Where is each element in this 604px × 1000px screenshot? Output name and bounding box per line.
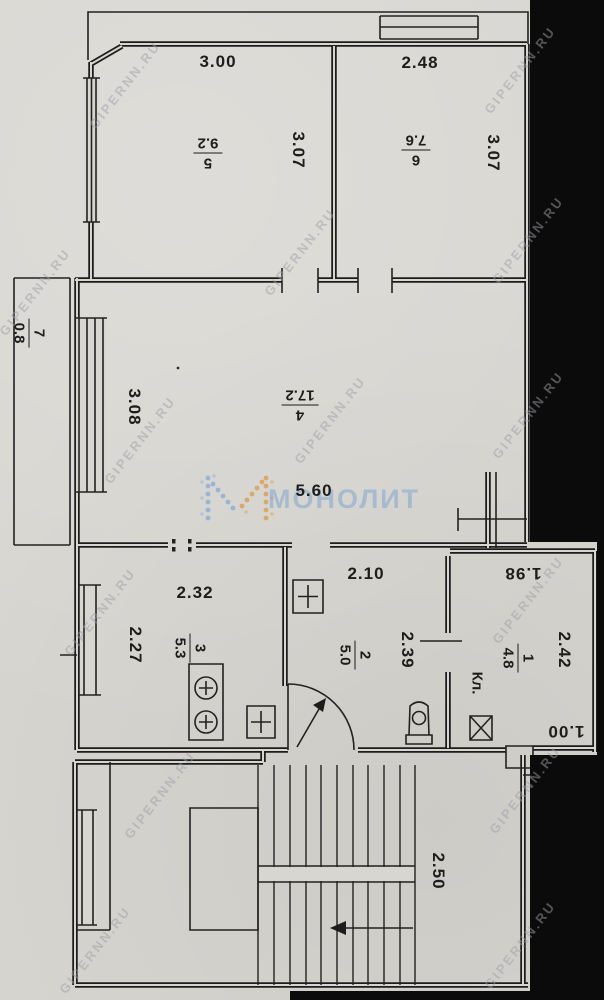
dim-room3-width: 2.32 bbox=[176, 583, 213, 603]
room-label-6: 6 7.6 bbox=[402, 133, 431, 168]
room-label-2-hall: 2 5.0 bbox=[338, 641, 373, 670]
dim-room3-depth: 2.27 bbox=[125, 626, 145, 663]
room-number: 1 bbox=[519, 650, 536, 666]
room-number: 4 bbox=[292, 406, 308, 423]
dim-room5-depth: 3.07 bbox=[288, 131, 308, 168]
vent-box-kitchen-icon bbox=[247, 706, 275, 738]
window-room5-left bbox=[83, 78, 100, 222]
room-number: 2 bbox=[356, 647, 373, 663]
dim-room1-depth: 2.42 bbox=[554, 631, 574, 668]
stove-icon bbox=[189, 664, 223, 740]
monolit-logo-icon bbox=[200, 474, 274, 520]
room-area: 17.2 bbox=[281, 388, 318, 406]
window-stairwell-left bbox=[77, 810, 97, 925]
dim-stairs-width: 2.50 bbox=[428, 852, 448, 889]
room-label-1-closet: 1 4.8 bbox=[501, 644, 536, 673]
room-label-4: 4 17.2 bbox=[281, 388, 318, 423]
door-threshold-room1 bbox=[506, 746, 533, 768]
elevator-shaft bbox=[190, 808, 258, 930]
room-number: 6 bbox=[408, 151, 424, 168]
dim-room5-width: 3.00 bbox=[199, 52, 236, 72]
room-label-3-kitchen: 3 5.3 bbox=[173, 634, 208, 663]
dim-room4-width: 5.60 bbox=[295, 481, 332, 501]
room-area: 9.2 bbox=[194, 136, 223, 154]
window-room3-left bbox=[78, 585, 101, 695]
sink-icon bbox=[470, 716, 492, 740]
room-label-5: 5 9.2 bbox=[194, 136, 223, 171]
room-number: 3 bbox=[191, 640, 208, 656]
dim-room1-width: 1.98 bbox=[504, 563, 541, 583]
room-number: 7 bbox=[30, 325, 47, 341]
room-area: 0.8 bbox=[12, 319, 30, 348]
room-area: 5.3 bbox=[173, 634, 191, 663]
dim-room4-depth: 3.08 bbox=[124, 388, 144, 425]
vent-box-hall-icon bbox=[293, 580, 323, 613]
room-area: 5.0 bbox=[338, 641, 356, 670]
dim-room1-door: 1.00 bbox=[547, 721, 584, 741]
scanned-floorplan-page: GIPERNN.RU GIPERNN.RU GIPERNN.RU GIPERNN… bbox=[0, 0, 604, 1000]
room-area: 7.6 bbox=[402, 133, 431, 151]
watermark-logo-text: МОНОЛИТ bbox=[268, 484, 420, 515]
dim-room6-width: 2.48 bbox=[401, 53, 438, 73]
scan-speck bbox=[177, 367, 180, 370]
stairs bbox=[258, 765, 415, 985]
room-name-closet: Кл. bbox=[469, 672, 486, 695]
dim-room2-width: 2.10 bbox=[347, 564, 384, 584]
room-number: 5 bbox=[200, 154, 216, 171]
dim-room2-depth: 2.39 bbox=[397, 631, 417, 668]
toilet-icon bbox=[406, 702, 432, 744]
window-room6-top bbox=[378, 14, 480, 41]
window-room4-left bbox=[75, 318, 107, 492]
room-area: 4.8 bbox=[501, 644, 519, 673]
room-label-7-balcony: 7 0.8 bbox=[12, 319, 47, 348]
entrance-door-arc bbox=[288, 684, 354, 750]
opening-dashes-kitchen bbox=[172, 539, 192, 552]
entrance-arrow-icon bbox=[297, 698, 326, 747]
dim-room6-depth: 3.07 bbox=[483, 134, 503, 171]
